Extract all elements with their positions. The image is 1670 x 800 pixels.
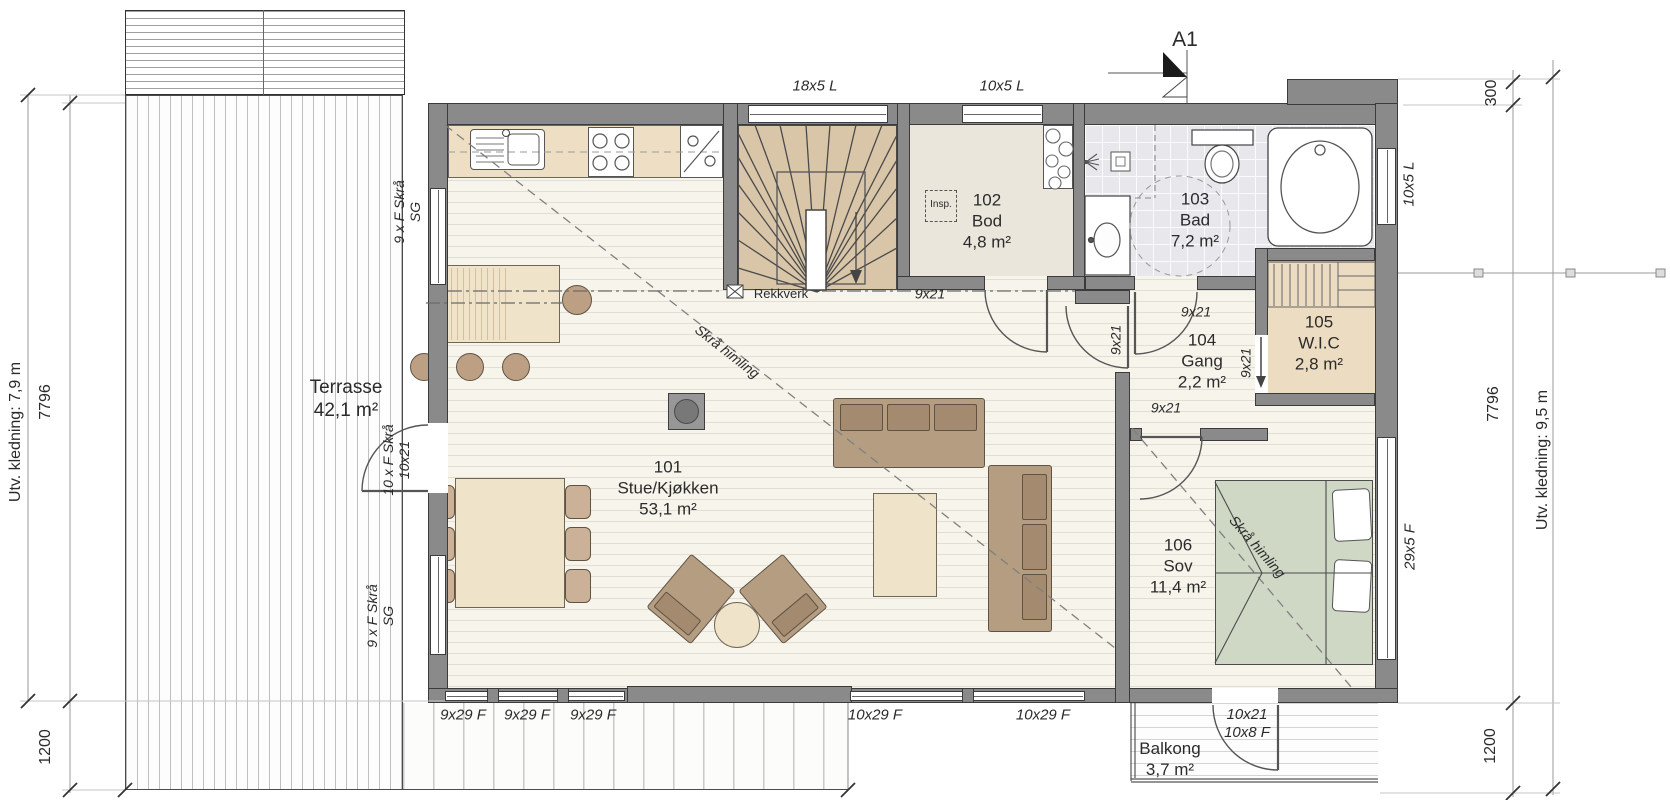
window-label-10x29-2: 10x29 F xyxy=(1016,707,1070,726)
dim-1200-right: 1200 xyxy=(1481,728,1501,764)
roof-overhang-ridge xyxy=(263,10,264,95)
sofa-large xyxy=(833,398,985,468)
dim-cladding-left: Utv. kledning: 7,9 m xyxy=(6,362,26,502)
dim-cladding-right: Utv. kledning: 9,5 m xyxy=(1533,390,1553,530)
dining-chair xyxy=(565,527,591,561)
bar-stool xyxy=(562,285,592,315)
dining-chair xyxy=(565,485,591,519)
dishwasher xyxy=(680,125,723,178)
wic-door-opening xyxy=(1255,335,1268,393)
sofa-small xyxy=(988,465,1052,632)
inspection-label: Insp. xyxy=(930,199,952,212)
dim-300-right: 300 xyxy=(1482,80,1502,107)
balcony-door-opening xyxy=(1212,688,1278,703)
window-label-9x29-2: 9x29 F xyxy=(504,707,550,726)
door-label-bad: 9x21 xyxy=(1181,303,1211,321)
window-bottom-9x29-band xyxy=(445,691,625,701)
kitchen-sink-unit xyxy=(470,129,545,170)
window-label-left-bottom: 9 x F SkråSG xyxy=(364,584,396,648)
door-label-bod: 9x21 xyxy=(915,285,945,303)
fireplace-flue xyxy=(674,399,699,424)
terrace-door-opening xyxy=(428,423,448,493)
dining-chair xyxy=(565,569,591,603)
wall-top-step xyxy=(1287,79,1398,105)
cooktop xyxy=(588,127,634,177)
pillow xyxy=(1332,559,1373,613)
door-label-balcony: 10x2110x8 F xyxy=(1224,706,1270,742)
room-label-gang: 104Gang2,2 m² xyxy=(1178,330,1226,393)
window-label-left-top: 9 x F SkråSG xyxy=(391,180,423,244)
window-right-29x5 xyxy=(1377,437,1396,660)
wall-kitchen-stairs xyxy=(723,103,738,290)
wall-bod-bottom-right xyxy=(1047,276,1085,290)
pillow xyxy=(1332,488,1373,542)
window-mullion xyxy=(962,688,974,703)
section-label-a1: A1 xyxy=(1172,27,1198,53)
window-left-bottom xyxy=(430,555,446,655)
balcony-label: Balkong3,7 m² xyxy=(1139,738,1200,780)
wall-sov-door-jamb xyxy=(1130,428,1142,441)
window-label-9x29-1: 9x29 F xyxy=(440,707,486,726)
window-label-10x29-1: 10x29 F xyxy=(848,707,902,726)
window-label-9x29-3: 9x29 F xyxy=(570,707,616,726)
window-mullion xyxy=(487,688,499,703)
wall-wic-top xyxy=(1255,248,1375,261)
wall-stairs-bod xyxy=(897,103,910,290)
dim-7796-right: 7796 xyxy=(1484,386,1504,422)
door-label-hall: 9x21 xyxy=(1107,325,1125,355)
wall-bad-bottom-left xyxy=(1085,276,1135,290)
floor-plan: 101Stue/Kjøkken53,1 m² 102Bod4,8 m² 103B… xyxy=(0,0,1670,800)
window-right-10x5 xyxy=(1377,148,1396,225)
stairs-floor xyxy=(738,125,897,290)
wall-bottom-solid xyxy=(627,686,852,703)
wall-bod-bad xyxy=(1073,103,1085,290)
door-label-wic: 9x21 xyxy=(1237,348,1255,378)
door-label-sov: 9x21 xyxy=(1151,399,1181,417)
window-label-29x5-right: 29x5 F xyxy=(1402,524,1421,570)
window-label-10x5-right: 10x5 L xyxy=(1401,161,1420,206)
window-top-18x5 xyxy=(748,105,888,123)
window-label-18x5: 18x5 L xyxy=(792,78,837,97)
dim-7796-left: 7796 xyxy=(36,384,56,420)
wall-gang-sov xyxy=(1200,428,1268,441)
dining-table xyxy=(455,478,565,608)
roof-overhang xyxy=(125,10,405,95)
terrace-label: Terrasse42,1 m² xyxy=(310,376,383,422)
railing-label: Rekkverk xyxy=(754,286,808,302)
room-label-sov: 106Sov11,4 m² xyxy=(1150,535,1206,598)
window-top-10x5 xyxy=(962,105,1043,123)
window-left-top xyxy=(430,188,446,285)
water-heater-unit xyxy=(1043,125,1073,189)
room-label-wic: 105W.I.C2,8 m² xyxy=(1295,312,1343,375)
room-label-bad: 103Bad7,2 m² xyxy=(1171,189,1219,252)
wall-top xyxy=(428,103,1398,125)
room-label-living: 101Stue/Kjøkken53,1 m² xyxy=(617,457,718,520)
wall-partition-living-sov xyxy=(1115,372,1130,703)
terrace-deck xyxy=(125,95,403,790)
window-label-10x5-top: 10x5 L xyxy=(979,78,1024,97)
coffee-table xyxy=(873,493,937,597)
wall-stub-hall xyxy=(1075,290,1130,304)
bar-stool xyxy=(502,353,530,381)
window-mullion xyxy=(557,688,569,703)
wall-wic-bottom xyxy=(1255,393,1375,406)
dim-1200-left: 1200 xyxy=(36,729,56,765)
bar-stool xyxy=(456,353,484,381)
room-label-bod: 102Bod4,8 m² xyxy=(963,190,1011,253)
side-table xyxy=(714,602,760,648)
door-label-terrace: 10 x F Skrå10x21 xyxy=(380,424,412,495)
